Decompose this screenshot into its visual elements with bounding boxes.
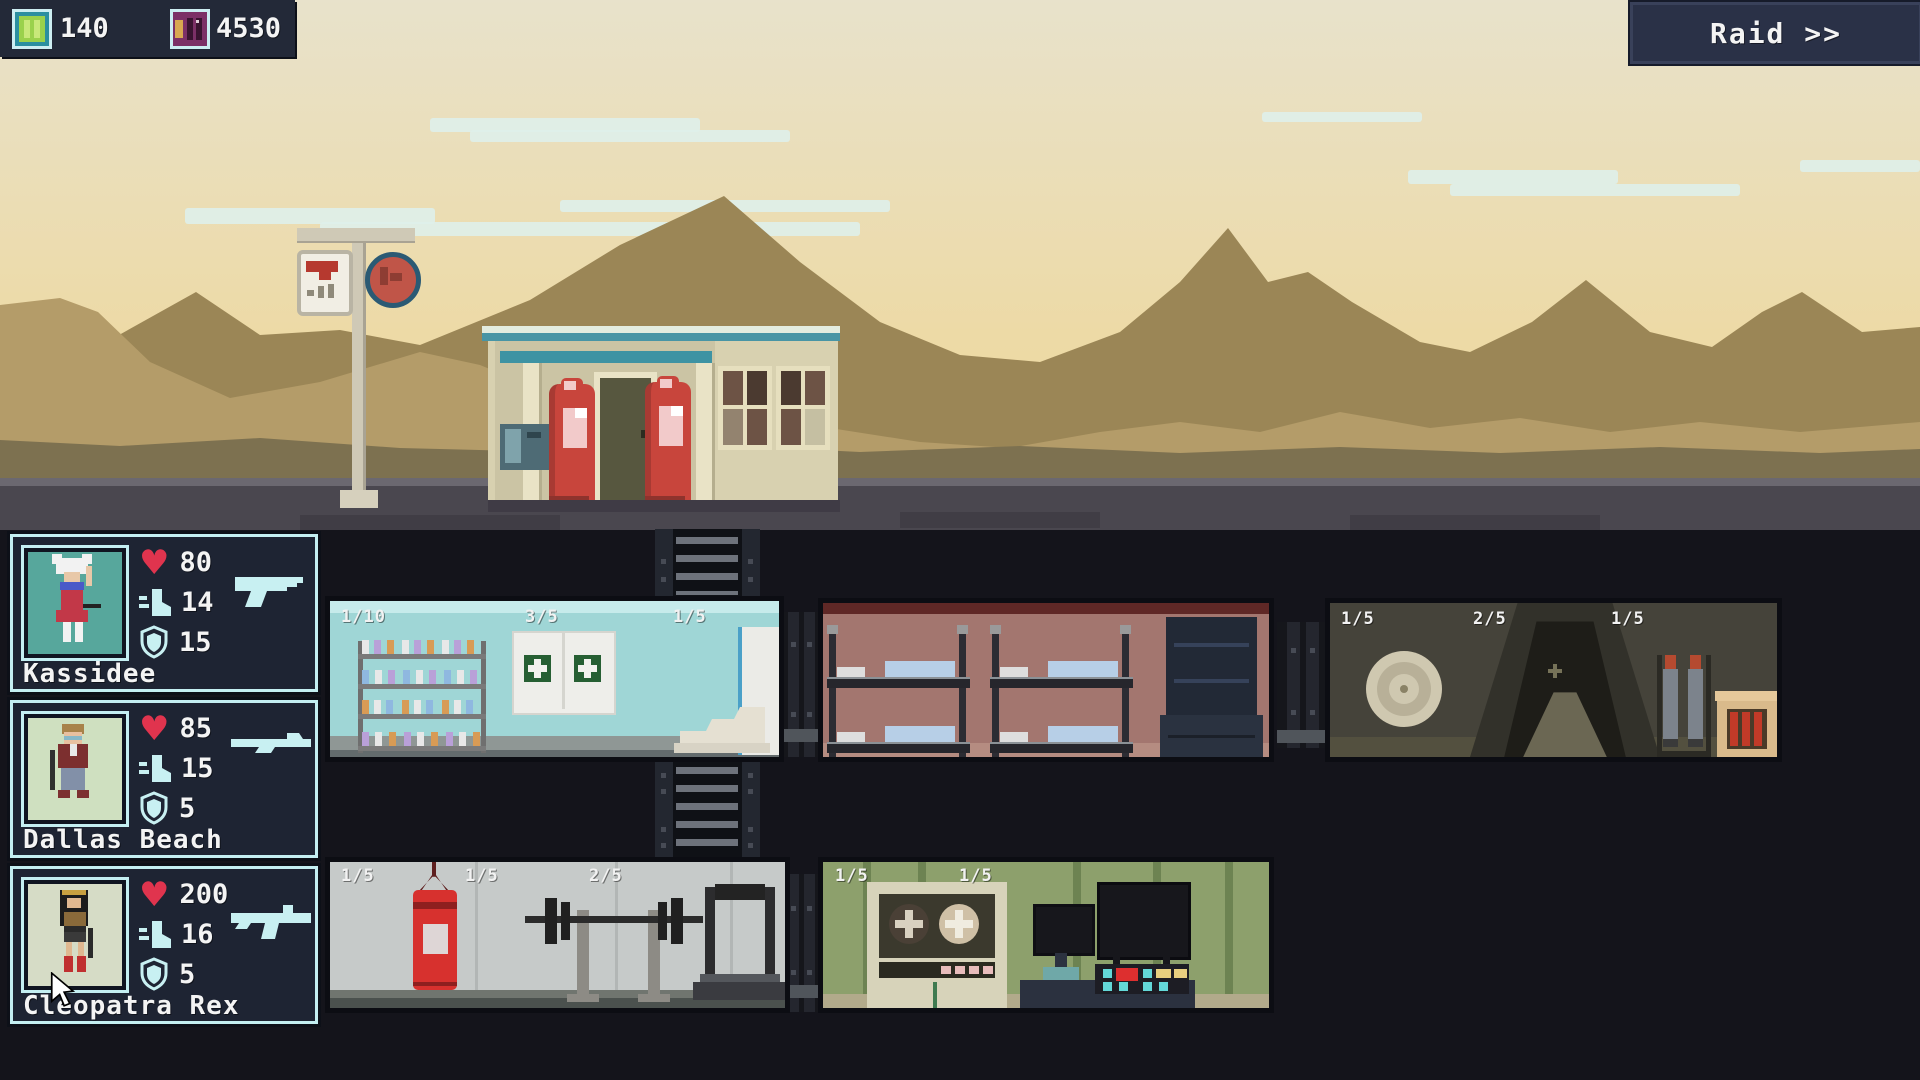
shelf-bar <box>358 684 486 689</box>
post-cap <box>957 625 968 634</box>
game-stage: 1/10 3/5 1/5 <box>0 0 1920 1080</box>
room-capacity-label: 1/5 <box>959 866 993 886</box>
bunk-bed <box>990 617 1133 757</box>
drawer-line <box>1168 735 1255 738</box>
medicine-bottles <box>362 732 482 746</box>
rack-foot <box>638 994 670 1002</box>
raid-button[interactable]: Raid >> <box>1628 0 1920 66</box>
panel-button <box>1116 968 1138 981</box>
pump-cap-window <box>564 381 576 390</box>
rivet <box>661 843 666 848</box>
pillow <box>837 667 865 677</box>
bag-band <box>413 902 457 909</box>
treadmill-rail <box>705 887 715 985</box>
speed-value: 16 <box>181 919 214 950</box>
station-roof-trim <box>482 326 840 333</box>
cylinder-cap <box>1690 655 1701 669</box>
battery-cell <box>24 20 30 38</box>
rivet <box>1291 710 1296 715</box>
room-vault[interactable]: 1/5 2/5 1/5 <box>1325 598 1782 762</box>
bag-label <box>423 924 448 954</box>
boot-icon <box>139 754 171 784</box>
medicine-bottles <box>362 670 482 684</box>
window-pane <box>805 409 825 445</box>
shield-icon <box>139 957 169 991</box>
wall-stripe <box>823 603 1269 614</box>
bunk-post <box>992 631 999 757</box>
portrait-bg <box>28 552 122 654</box>
shelf-bar <box>358 654 486 659</box>
tunnel-marker <box>1553 664 1557 678</box>
rivet <box>661 827 666 832</box>
character-name: Dallas Beach <box>23 825 223 855</box>
barbell-plate <box>658 902 667 940</box>
rivet <box>791 642 796 647</box>
gas-pump <box>645 382 691 506</box>
bunk-post <box>1122 631 1129 757</box>
control-board <box>1095 964 1189 994</box>
medical-cross-icon <box>574 655 601 682</box>
rifle-icon <box>231 731 311 755</box>
station-door <box>600 378 651 502</box>
window-pane <box>781 409 801 445</box>
window-pane <box>747 409 767 445</box>
tape-reel <box>889 904 929 944</box>
price-sign-logo <box>319 272 331 280</box>
pistol-icon <box>231 565 307 609</box>
crate-lid <box>1715 691 1777 701</box>
round-sign-glyph <box>390 273 402 281</box>
cloud <box>1800 160 1920 172</box>
rivet <box>791 970 796 975</box>
rivet <box>807 712 812 717</box>
tape-button <box>983 966 993 974</box>
portrait-boot <box>64 956 73 972</box>
portrait-scarf <box>60 582 84 590</box>
rivet <box>661 789 666 794</box>
heart-icon: ♥ <box>139 880 169 910</box>
pump-screen-glare <box>671 406 683 416</box>
blanket <box>885 661 955 677</box>
portrait-skirt <box>56 610 88 622</box>
portrait-boot <box>77 956 86 972</box>
wardrobe-shelf <box>1174 679 1249 683</box>
cabinet-split <box>562 633 565 709</box>
gym-interior: 1/5 1/5 2/5 <box>330 862 785 1008</box>
station-roof-stripe <box>482 333 840 341</box>
tape-button-strip <box>879 962 995 978</box>
vending-slot <box>527 432 541 438</box>
room-capacity-label: 1/5 <box>835 866 869 886</box>
dynamite-sticks <box>1730 712 1764 746</box>
cloud <box>1450 184 1740 196</box>
treadmill-belt <box>700 974 780 982</box>
room-capacity-label: 1/5 <box>465 866 499 886</box>
portrait-bg <box>28 884 122 986</box>
station-window <box>776 366 830 450</box>
portrait-shoe <box>77 790 89 798</box>
window-pane <box>723 371 743 405</box>
room-capacity-label: 3/5 <box>525 607 559 627</box>
connector-sill <box>1277 730 1326 743</box>
tape-button <box>969 966 979 974</box>
medicine-bottles <box>362 640 482 654</box>
chip-slot <box>187 18 193 40</box>
ladder-shaft <box>655 761 760 858</box>
speed-stat: 16 <box>139 919 214 950</box>
ladder-rungs <box>676 537 738 595</box>
round-sign <box>365 252 421 308</box>
raid-button-label: Raid >> <box>1710 17 1842 50</box>
character-card[interactable]: ♥ 80 14 15 Kassidee <box>10 534 318 692</box>
rivet <box>748 773 753 778</box>
portrait-jeans <box>61 768 85 790</box>
control-interior: 1/5 1/5 <box>823 862 1269 1008</box>
cylinder-cap <box>1665 655 1676 669</box>
character-name: Kassidee <box>23 659 156 689</box>
portrait-face <box>64 572 80 582</box>
cylinder-foot <box>1663 739 1678 747</box>
health-stat: ♥ 200 <box>139 879 228 910</box>
portrait-glasses <box>64 736 82 740</box>
shield-icon <box>139 625 169 659</box>
asphalt-patch <box>1350 515 1600 530</box>
panel-button <box>1156 969 1171 978</box>
explosives-crate <box>1717 691 1777 757</box>
punching-bag <box>413 890 457 990</box>
bag-band <box>413 982 457 986</box>
vending-machine <box>500 424 549 470</box>
pump-cap-window <box>660 379 672 388</box>
vending-screen <box>505 429 521 463</box>
portrait-skirt <box>64 932 86 942</box>
wardrobe-shelf <box>1174 643 1249 647</box>
health-value: 200 <box>179 879 228 910</box>
room-capacity-label: 1/5 <box>673 607 707 627</box>
room-dorm[interactable] <box>818 598 1274 762</box>
speed-stat: 14 <box>139 587 214 618</box>
bunk-bar <box>827 742 970 753</box>
speed-stat: 15 <box>139 753 214 784</box>
room-capacity-label: 1/5 <box>1341 609 1375 629</box>
large-monitor <box>1097 882 1191 960</box>
ammo-chip-icon <box>170 9 210 49</box>
bunk-bar <box>990 742 1133 753</box>
portrait-dress <box>61 590 83 612</box>
connector-sill <box>783 729 819 742</box>
vault-interior: 1/5 2/5 1/5 <box>1330 603 1777 757</box>
rivet <box>807 970 812 975</box>
shelf-bar <box>358 714 486 719</box>
chip-dot <box>196 20 199 23</box>
rivet <box>1291 648 1296 653</box>
vault-wheel <box>1366 651 1442 727</box>
ladder-shaft <box>655 529 760 597</box>
shield-icon <box>139 791 169 825</box>
rivet <box>1310 648 1315 653</box>
armor-value: 15 <box>179 627 212 658</box>
rivet <box>791 712 796 717</box>
portrait-bg <box>28 718 122 820</box>
heart-icon: ♥ <box>139 714 169 744</box>
medical-cross-icon <box>524 655 551 682</box>
speed-value: 14 <box>181 587 214 618</box>
portrait-top <box>64 912 86 926</box>
pump-screen-glare <box>575 408 587 418</box>
portrait-hair <box>52 554 62 564</box>
boot-icon <box>139 588 171 618</box>
price-sign-bar <box>318 286 324 298</box>
panel-button <box>1143 982 1152 991</box>
rivet <box>661 559 666 564</box>
station-shadow <box>488 500 840 512</box>
wardrobe <box>1166 617 1257 757</box>
bunk-bar <box>990 677 1133 688</box>
first-aid-cabinet <box>512 631 616 715</box>
ladder-rungs <box>676 767 738 855</box>
rack-post <box>1706 655 1711 757</box>
health-stat: ♥ 80 <box>139 547 212 578</box>
room-control[interactable]: 1/5 1/5 <box>818 857 1274 1013</box>
character-card[interactable]: ♥ 85 15 5 Dallas Beach <box>10 700 318 858</box>
sign-base <box>340 490 378 508</box>
wall-pipe <box>1225 862 1233 994</box>
station-canopy-stripe <box>500 351 712 363</box>
post-cap <box>827 625 838 634</box>
panel-button <box>1159 982 1168 991</box>
cloud <box>470 130 790 142</box>
window-pane <box>781 371 801 405</box>
portrait-shoe <box>58 790 70 798</box>
room-connector <box>783 612 819 757</box>
armor-stat: 5 <box>139 791 195 825</box>
portrait-boot <box>63 622 71 642</box>
cabinet-seam <box>933 982 937 1008</box>
barbell-plate <box>671 898 683 944</box>
rack-foot <box>567 994 599 1002</box>
window-pane <box>747 371 767 405</box>
cloud <box>1262 112 1422 122</box>
treadmill-base <box>693 982 785 1000</box>
bunk-post <box>959 631 966 757</box>
battery-icon <box>12 9 52 49</box>
bunk-bar <box>827 677 970 688</box>
portrait-headband <box>62 890 86 895</box>
rivet <box>1310 710 1315 715</box>
window-pane <box>723 409 743 445</box>
portrait-boot <box>75 622 83 642</box>
health-value: 85 <box>179 713 212 744</box>
panel-button <box>1103 969 1112 978</box>
vault-wheel-center <box>1400 685 1408 693</box>
panel-button <box>1143 969 1152 978</box>
blanket <box>885 726 955 742</box>
rivet <box>807 642 812 647</box>
price-sign-bar <box>328 284 334 298</box>
character-portrait <box>21 545 129 661</box>
gas-cylinder <box>1663 669 1678 747</box>
battery-core <box>19 16 45 42</box>
room-capacity-label: 2/5 <box>589 866 623 886</box>
panel-button <box>1174 969 1187 978</box>
price-sign <box>297 250 353 316</box>
room-gym[interactable]: 1/5 1/5 2/5 <box>325 857 790 1013</box>
panel-button <box>1119 982 1128 991</box>
cloud <box>1408 170 1618 184</box>
barbell-plate <box>561 902 570 940</box>
bunk-bed <box>827 617 970 757</box>
portrait-weapon <box>83 604 101 608</box>
armor-stat: 5 <box>139 957 195 991</box>
armor-stat: 15 <box>139 625 212 659</box>
room-connector <box>1277 622 1326 748</box>
resource-value: 140 <box>60 13 109 44</box>
station-pillar <box>696 363 715 502</box>
gas-cylinder <box>1688 669 1703 747</box>
treadmill-console <box>715 884 765 900</box>
rivet <box>807 906 812 911</box>
rivet <box>661 773 666 778</box>
rivet <box>748 559 753 564</box>
portrait-weapon <box>88 928 93 958</box>
boot-icon <box>139 920 171 950</box>
rivet <box>748 843 753 848</box>
room-capacity-label: 1/5 <box>1611 609 1645 629</box>
portrait-shirt-front <box>70 744 77 756</box>
treadmill-rail <box>765 887 775 985</box>
room-capacity-label: 1/10 <box>341 607 386 627</box>
room-capacity-label: 1/5 <box>341 866 375 886</box>
sign-pole <box>352 228 366 502</box>
reel-spoke <box>895 920 923 928</box>
rack-bar <box>1657 751 1711 757</box>
resource-bar: 140 4530 <box>0 0 295 57</box>
post-cap <box>1120 625 1131 634</box>
rack-post <box>1657 655 1662 757</box>
medbay-interior: 1/10 3/5 1/5 <box>330 601 779 757</box>
pillow <box>1000 732 1028 742</box>
dorm-interior <box>823 603 1269 757</box>
cylinder-rack <box>1657 655 1711 757</box>
tape-reel <box>939 904 979 944</box>
pillow <box>837 732 865 742</box>
resource-value: 4530 <box>216 13 281 44</box>
medicine-bottles <box>362 700 482 714</box>
room-medbay[interactable]: 1/10 3/5 1/5 <box>325 596 784 762</box>
reel-spoke <box>945 920 973 928</box>
asphalt-patch <box>300 515 560 530</box>
small-monitor <box>1033 904 1095 956</box>
post-cap <box>990 625 1001 634</box>
exam-bed-base <box>674 743 770 753</box>
asphalt-patch <box>900 512 1100 528</box>
tape-computer <box>867 882 1007 1008</box>
room-capacity-label: 2/5 <box>1473 609 1507 629</box>
portrait-arm <box>86 566 92 586</box>
health-value: 80 <box>179 547 212 578</box>
tape-button <box>955 966 965 974</box>
rivet <box>791 906 796 911</box>
shelf-bar <box>358 746 486 751</box>
mouse-cursor <box>50 972 76 1008</box>
portrait-leg <box>78 942 84 956</box>
portrait-face <box>67 898 81 908</box>
station-window <box>718 366 772 450</box>
portrait-leg <box>66 942 72 956</box>
wall-seam <box>730 862 733 992</box>
rivet <box>748 789 753 794</box>
panel-button <box>1103 982 1112 991</box>
price-sign-bar <box>307 290 314 296</box>
monitor-base <box>1043 967 1079 980</box>
portrait-rifle <box>50 750 55 790</box>
sign-crossbar <box>297 228 415 243</box>
heart-icon: ♥ <box>139 548 169 578</box>
round-sign-glyph <box>380 267 388 285</box>
window-pane <box>805 371 825 405</box>
chip-clip <box>175 20 183 38</box>
gas-pump <box>549 384 595 506</box>
armor-value: 5 <box>179 959 195 990</box>
rivet <box>748 577 753 582</box>
pillow <box>1000 667 1028 677</box>
speed-value: 15 <box>181 753 214 784</box>
rack-upright <box>577 910 589 1002</box>
price-sign-logo <box>306 261 338 272</box>
blanket <box>1048 726 1118 742</box>
road-edge <box>0 478 1920 486</box>
health-stat: ♥ 85 <box>139 713 212 744</box>
portrait-hair <box>82 554 92 564</box>
battery-cell <box>34 20 40 38</box>
cylinder-foot <box>1688 739 1703 747</box>
tape-button <box>941 966 951 974</box>
smg-icon <box>231 903 311 939</box>
rivet <box>661 577 666 582</box>
barbell-plate <box>545 898 557 944</box>
character-portrait <box>21 711 129 827</box>
bag-chain <box>432 862 436 876</box>
rivet <box>748 827 753 832</box>
armor-value: 5 <box>179 793 195 824</box>
bunk-post <box>829 631 836 757</box>
blanket <box>1048 661 1118 677</box>
